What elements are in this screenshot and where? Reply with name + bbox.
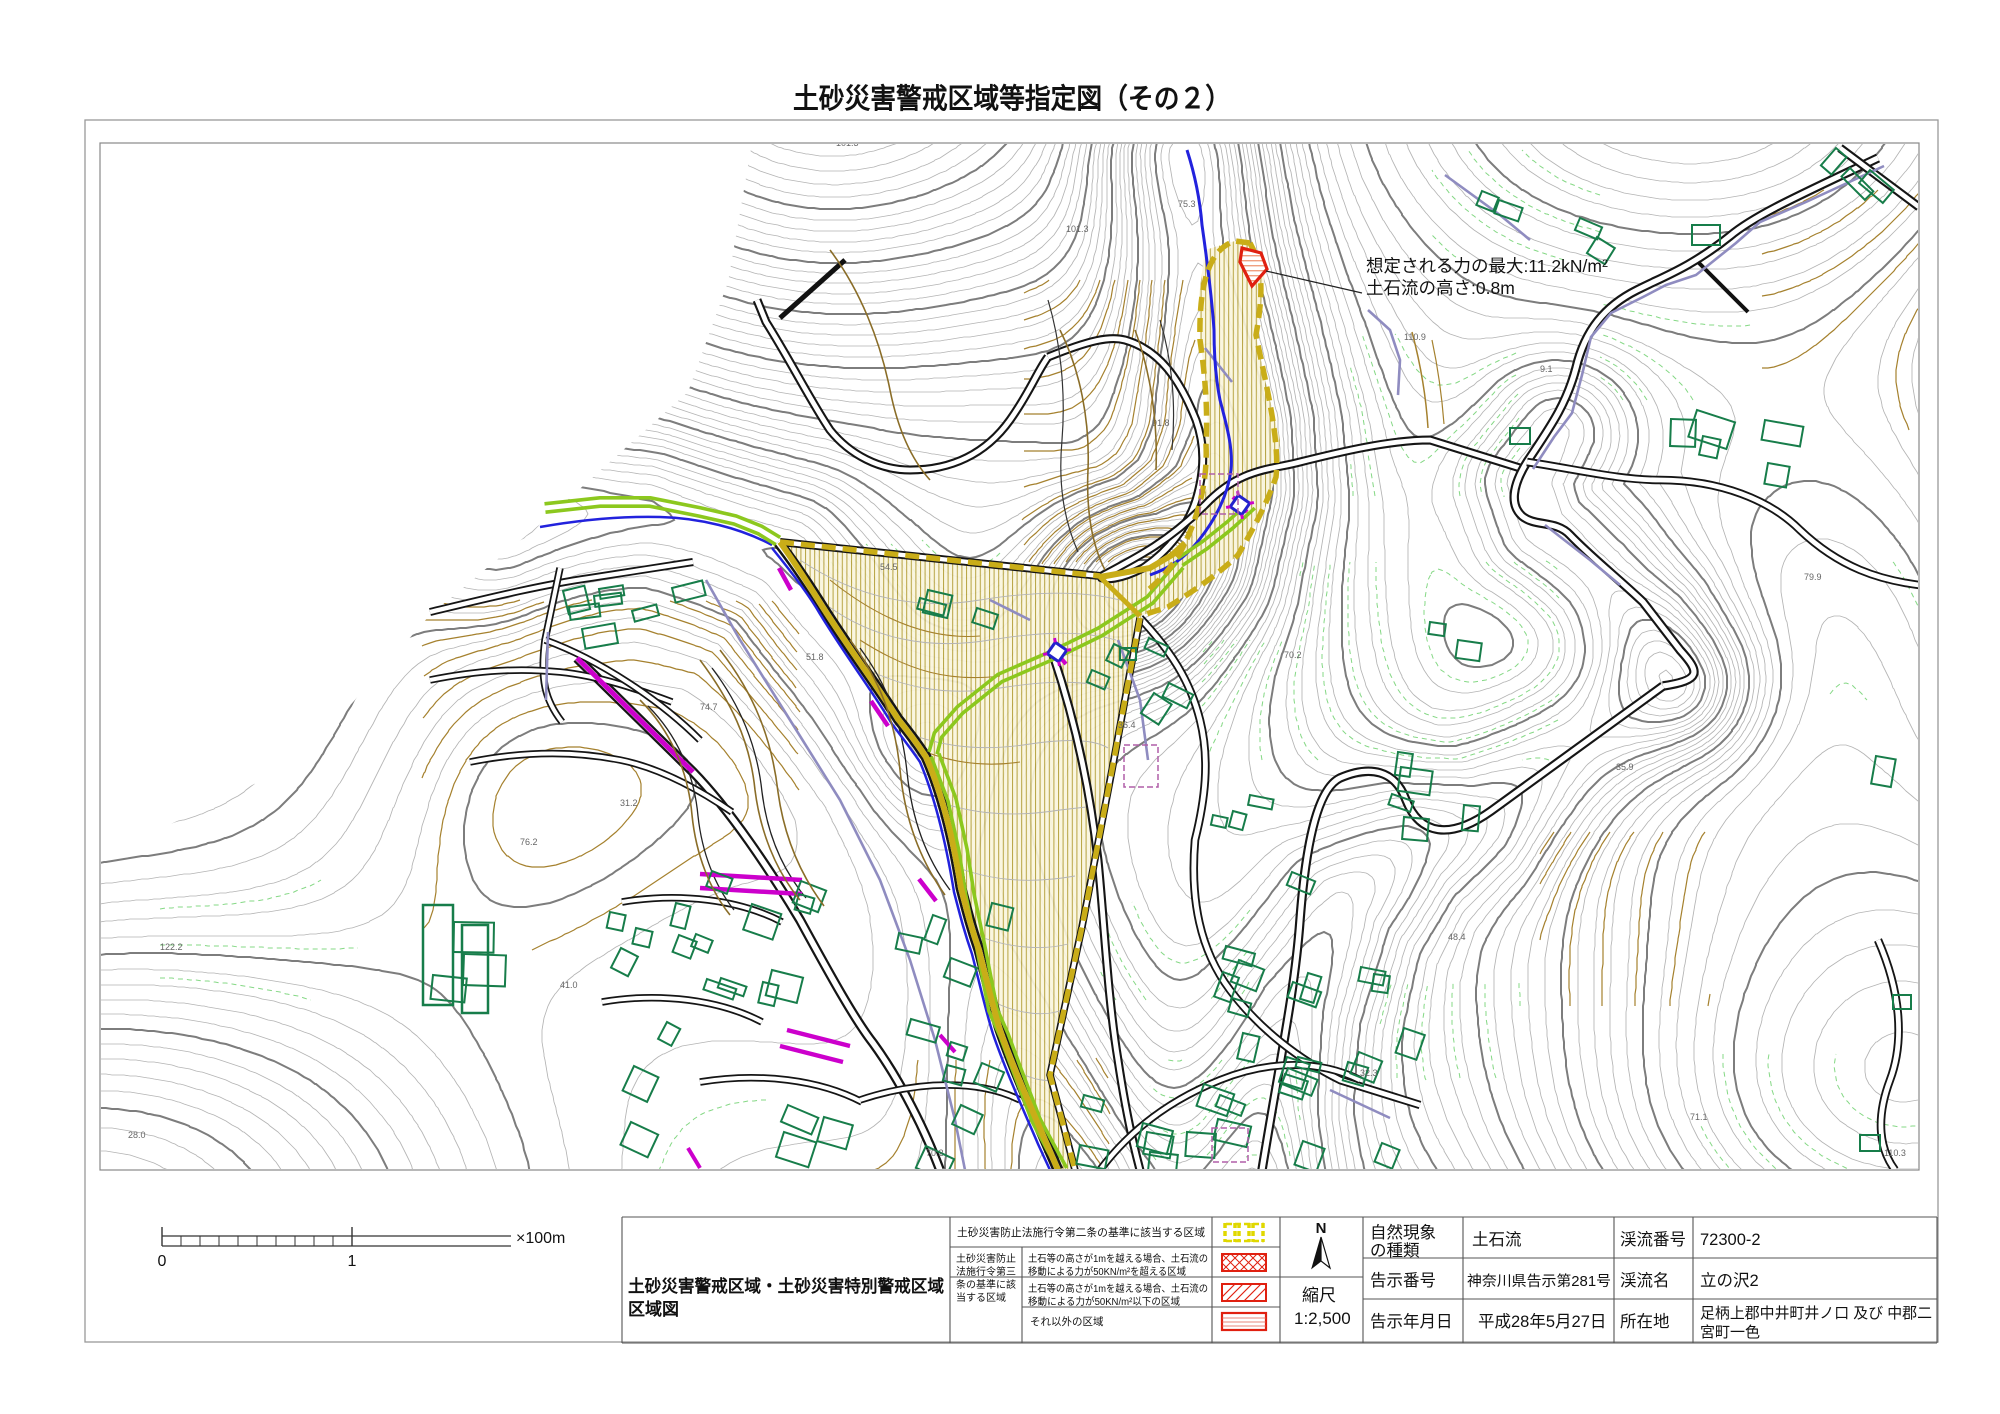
svg-text:土石流の高さ:0.8m: 土石流の高さ:0.8m [1366, 278, 1515, 298]
svg-text:74.7: 74.7 [700, 702, 718, 712]
svg-text:0: 0 [158, 1253, 167, 1270]
svg-text:土砂災害防止: 土砂災害防止 [956, 1252, 1016, 1265]
svg-text:の種類: の種類 [1370, 1241, 1420, 1260]
svg-text:土石流: 土石流 [1472, 1230, 1522, 1249]
svg-text:当する区域: 当する区域 [956, 1291, 1006, 1304]
svg-text:36.4: 36.4 [1118, 720, 1136, 730]
svg-text:N: N [1316, 1220, 1327, 1237]
svg-text:9.1: 9.1 [1540, 364, 1553, 374]
svg-text:70.2: 70.2 [1284, 650, 1302, 660]
svg-text:宮町一色: 宮町一色 [1700, 1324, 1760, 1341]
svg-text:71.1: 71.1 [1690, 1112, 1708, 1122]
svg-text:76.2: 76.2 [520, 837, 538, 847]
svg-text:51.8: 51.8 [806, 652, 824, 662]
svg-text:想定される力の最大:11.2kN/m2: 想定される力の最大:11.2kN/m2 [1366, 256, 1608, 276]
svg-text:101.3: 101.3 [1066, 224, 1089, 234]
svg-text:110.9: 110.9 [1404, 332, 1426, 342]
svg-text:41.0: 41.0 [560, 980, 578, 990]
svg-text:告示年月日: 告示年月日 [1370, 1312, 1453, 1331]
svg-text:75.3: 75.3 [1178, 199, 1196, 209]
svg-text:54.5: 54.5 [880, 562, 898, 572]
svg-text:縮尺: 縮尺 [1302, 1286, 1336, 1305]
svg-text:122.2: 122.2 [160, 942, 183, 952]
svg-text:立の沢2: 立の沢2 [1700, 1271, 1759, 1290]
svg-text:神奈川県告示第281号: 神奈川県告示第281号 [1467, 1272, 1611, 1290]
svg-text:条の基準に該: 条の基準に該 [956, 1278, 1016, 1291]
svg-text:平成28年5月27日: 平成28年5月27日 [1478, 1312, 1606, 1331]
svg-text:渓流名: 渓流名 [1620, 1271, 1670, 1290]
svg-text:自然現象: 自然現象 [1370, 1223, 1436, 1242]
svg-text:31.2: 31.2 [620, 798, 638, 808]
svg-text:32.3: 32.3 [1360, 1068, 1378, 1078]
svg-text:72300-2: 72300-2 [1700, 1231, 1761, 1249]
svg-text:渓流番号: 渓流番号 [1620, 1230, 1686, 1249]
svg-text:70.2: 70.2 [926, 1148, 944, 1158]
svg-text:土砂災害防止法施行令第二条の基準に該当する区域: 土砂災害防止法施行令第二条の基準に該当する区域 [957, 1225, 1205, 1239]
svg-text:土砂災害警戒区域等指定図（その２）: 土砂災害警戒区域等指定図（その２） [793, 82, 1231, 114]
svg-text:28.0: 28.0 [128, 1130, 146, 1140]
svg-text:79.9: 79.9 [1804, 572, 1822, 582]
svg-text:×100m: ×100m [516, 1230, 565, 1247]
svg-text:告示番号: 告示番号 [1370, 1271, 1436, 1290]
svg-text:法施行令第三: 法施行令第三 [956, 1265, 1016, 1278]
svg-text:土石等の高さが1mを越える場合、土石流の: 土石等の高さが1mを越える場合、土石流の [1028, 1282, 1208, 1295]
svg-text:110.3: 110.3 [1884, 1148, 1906, 1158]
svg-text:48.4: 48.4 [1448, 932, 1466, 942]
svg-text:1:2,500: 1:2,500 [1294, 1309, 1351, 1328]
svg-text:区域図: 区域図 [628, 1299, 679, 1319]
svg-text:移動による力が50KN/m²以下の区域: 移動による力が50KN/m²以下の区域 [1028, 1295, 1180, 1308]
svg-text:所在地: 所在地 [1620, 1312, 1670, 1331]
svg-text:足柄上郡中井町井ノ口 及び 中郡二: 足柄上郡中井町井ノ口 及び 中郡二 [1700, 1305, 1932, 1322]
svg-text:1: 1 [348, 1253, 357, 1270]
svg-text:移動による力が50KN/m²を超える区域: 移動による力が50KN/m²を超える区域 [1028, 1265, 1186, 1278]
svg-text:それ以外の区域: それ以外の区域 [1030, 1315, 1104, 1328]
svg-text:35.9: 35.9 [1616, 762, 1634, 772]
svg-text:土砂災害警戒区域・土砂災害特別警戒区域: 土砂災害警戒区域・土砂災害特別警戒区域 [628, 1276, 944, 1296]
svg-text:土石等の高さが1mを越える場合、土石流の: 土石等の高さが1mを越える場合、土石流の [1028, 1252, 1208, 1265]
